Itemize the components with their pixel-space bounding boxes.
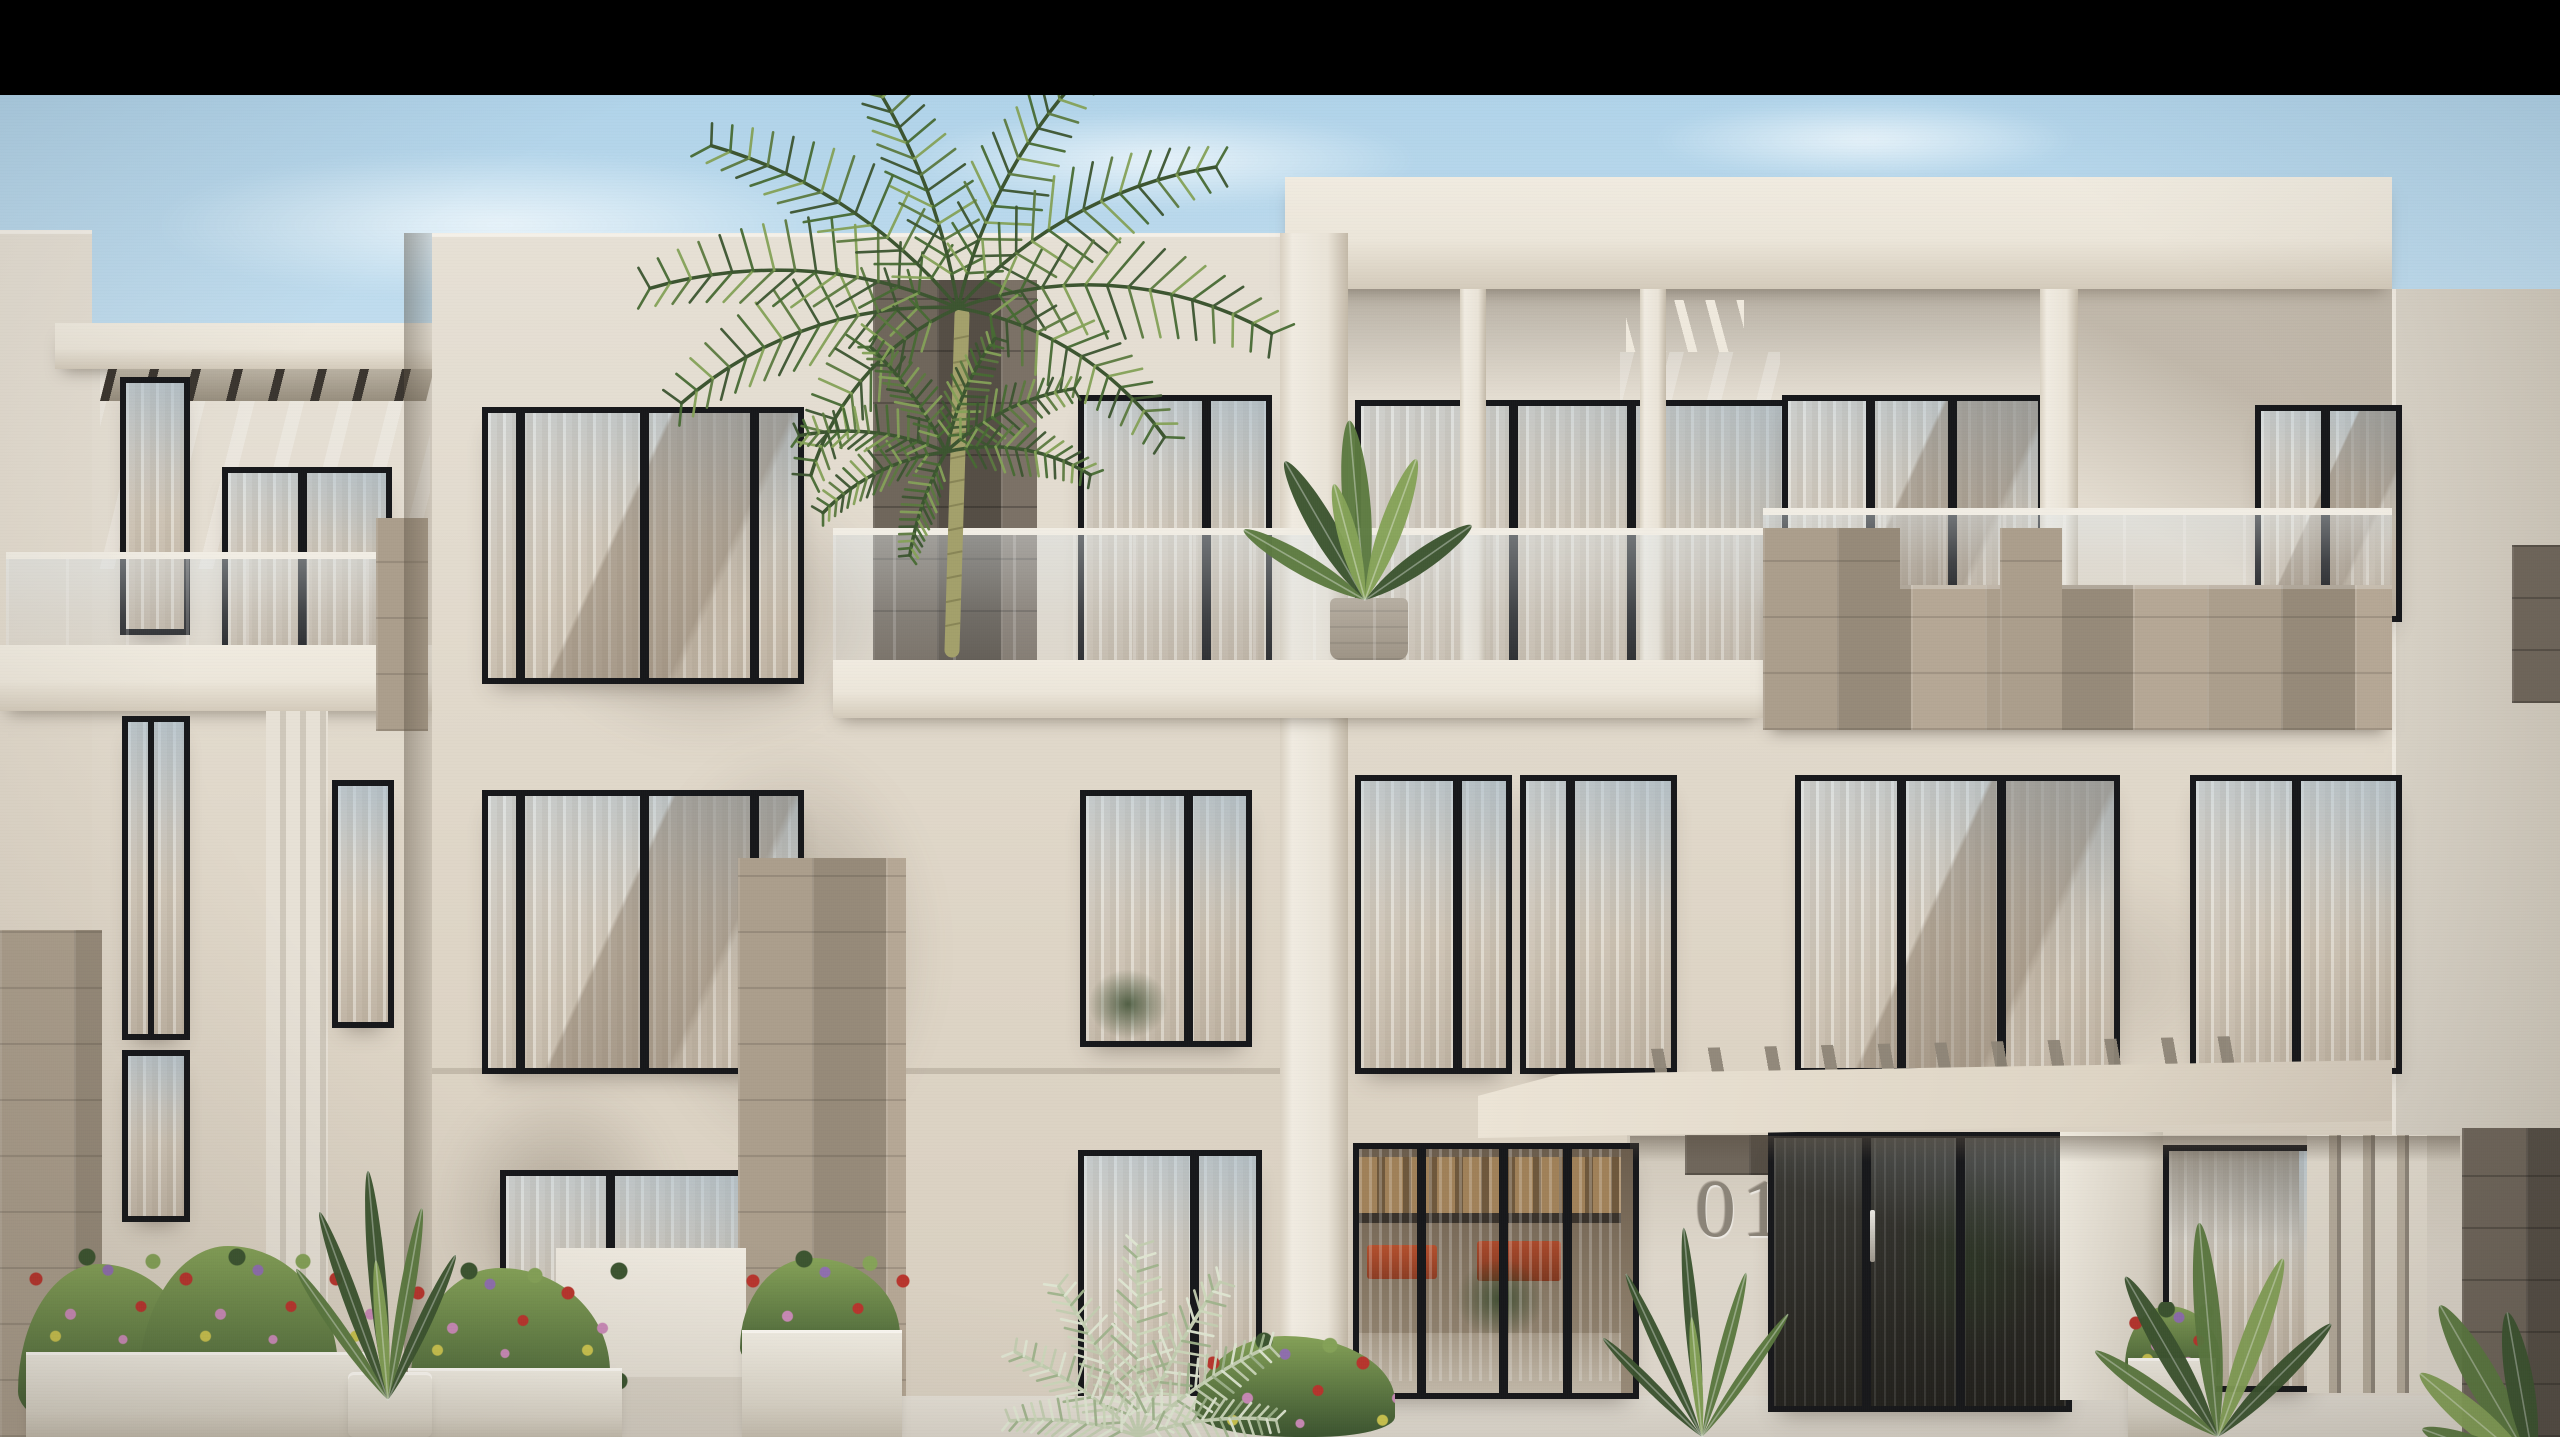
letterbox-top — [0, 0, 2560, 95]
palm-trees-and-plants — [0, 0, 2560, 1437]
scene-architectural-rendering: 01 — [0, 0, 2560, 1437]
